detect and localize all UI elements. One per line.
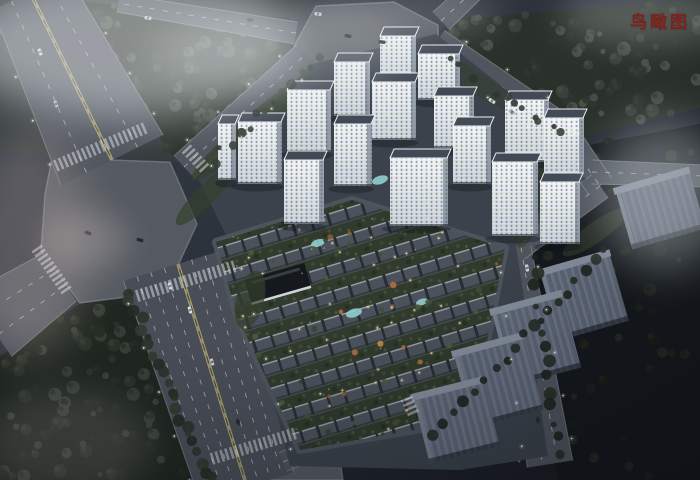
birdseye-rendering: 鸟瞰图 bbox=[0, 0, 700, 480]
caption-label: 鸟瞰图 bbox=[630, 8, 690, 33]
aerial-scene bbox=[0, 0, 700, 480]
